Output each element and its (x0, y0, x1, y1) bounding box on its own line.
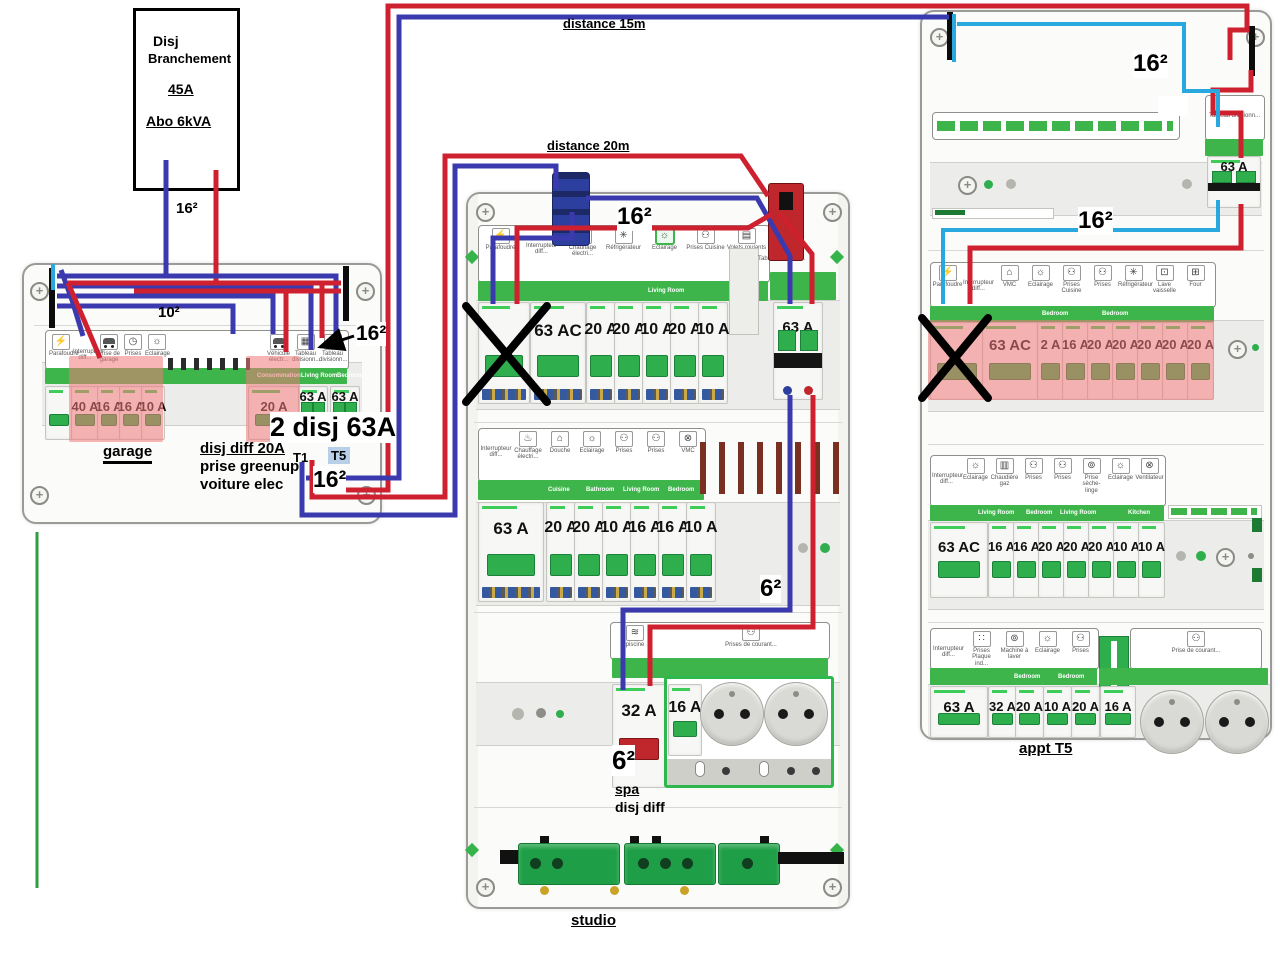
circuit-icon (996, 458, 1014, 474)
row2-icons: Interrupteur diff... Chauffage électri..… (479, 429, 705, 463)
circuit-icon (1072, 631, 1090, 647)
panel-screw (30, 282, 49, 301)
appt-title: appt T5 (1019, 740, 1072, 757)
circuit-icon (519, 431, 537, 447)
circuit-module: Interrupteur diff... (73, 334, 97, 362)
appt-row2-strip: Parafoudre Interrupteur diff... VMC Ecla… (930, 262, 1216, 308)
breaker-rating: 10 A (1113, 539, 1140, 554)
circuit-module: Prises Cuisine (685, 228, 726, 251)
breaker-toggle[interactable] (75, 414, 95, 426)
circuit-icon (738, 228, 756, 244)
wire-size-label: 10² (158, 304, 180, 321)
breaker[interactable]: 2 A (1037, 322, 1064, 400)
circuit-module: Prises Cuisine (1056, 265, 1087, 295)
panel-screw (823, 878, 842, 897)
breaker-toggle[interactable] (1047, 713, 1068, 725)
breaker-toggle[interactable] (145, 414, 162, 426)
main-diff-switch[interactable] (45, 386, 73, 440)
breaker-rating: 10 A (696, 321, 729, 339)
circuit-label: Prises (1064, 648, 1097, 654)
breaker[interactable]: 10 A (1043, 686, 1072, 738)
rail-screw (1216, 548, 1235, 567)
breaker-toggle[interactable] (1191, 363, 1210, 380)
circuit-module: Prises (1087, 265, 1118, 288)
breaker[interactable]: 16 A (630, 502, 660, 602)
breaker-toggle[interactable] (646, 355, 667, 377)
breaker-toggle[interactable] (1236, 171, 1256, 183)
breaker-toggle[interactable] (989, 363, 1030, 380)
breaker[interactable]: 20 A (1112, 322, 1139, 400)
spa-note: disj diff (615, 799, 665, 815)
circuit-icon (647, 431, 665, 447)
breaker[interactable]: 20 A (1063, 522, 1090, 598)
circuit-label: Eclairage (1025, 282, 1056, 288)
breaker-toggle[interactable] (1042, 561, 1061, 578)
surge-protector-crossed[interactable] (478, 302, 530, 404)
breaker-toggle[interactable] (606, 554, 627, 576)
breaker-toggle[interactable] (537, 355, 578, 377)
breaker[interactable]: 20 A (1071, 686, 1100, 738)
circuit-module: Interrupteur diff... (480, 431, 512, 459)
breaker-rating: 20 A (1187, 337, 1214, 352)
breaker-toggle[interactable] (662, 554, 683, 576)
service-box-rating: 45A (168, 81, 194, 97)
circuit-label: Prise sèche-linge (1077, 475, 1106, 494)
breaker-toggle[interactable] (49, 414, 69, 426)
power-socket[interactable] (700, 682, 764, 746)
phase-terminal (804, 386, 813, 395)
zone-label: Kitchen (1128, 510, 1150, 516)
row2-zone-band: Bedroom Bedroom (930, 306, 1214, 322)
diff-switch[interactable]: 63 AC (530, 302, 586, 404)
circuit-icon (1156, 265, 1174, 281)
zone-label: Living Room (301, 373, 337, 379)
zone-label: Living Room (648, 288, 684, 294)
busbar-cover (729, 248, 759, 335)
circuit-icon (656, 228, 674, 244)
circuit-module: Prise de garage (97, 334, 121, 364)
panel-screw (476, 878, 495, 897)
circuit-icon (939, 458, 955, 472)
breaker-toggle[interactable] (1075, 713, 1096, 725)
circuit-icon (1054, 458, 1072, 474)
wire-size-label: 16² (617, 203, 652, 231)
circuit-label: Four (1180, 282, 1211, 288)
sub-panel-label: Tableau divisionn... (1209, 113, 1261, 119)
circuit-icon (1187, 265, 1205, 281)
circuit-label: Interrupteur diff... (73, 349, 97, 362)
circuit-module: Chaudière gaz (990, 458, 1019, 488)
breaker[interactable]: 20 A (670, 302, 700, 404)
breaker-toggle[interactable] (1166, 363, 1185, 380)
studio-row2-strip: Interrupteur diff... Chauffage électri..… (478, 428, 706, 482)
breaker-rating: 20 A (1162, 337, 1189, 352)
wire-size-label: 16² (356, 322, 386, 346)
breaker-rating: 32 A (989, 699, 1016, 714)
wire-size-label: 6² (612, 745, 635, 776)
appt-row3-strip: Interrupteur diff... Eclairage Chaudière… (930, 455, 1166, 507)
breaker-toggle[interactable] (550, 554, 571, 576)
rail-screw (958, 176, 977, 195)
circuit-label: Eclairage (1106, 475, 1135, 481)
circuit-label: Interrupteur diff... (932, 646, 965, 659)
row3-icons: Interrupteur diff... Eclairage Chaudière… (931, 456, 1165, 496)
circuit-icon (1025, 458, 1043, 474)
row1-zone-band: Living Room (478, 281, 768, 301)
breaker-toggle[interactable] (702, 355, 723, 377)
wire-size-label: 16² (1078, 207, 1113, 235)
circuit-module: Prises (1019, 458, 1048, 481)
neutral-busbar (947, 12, 953, 60)
circuit-label: Chauffage électri... (512, 448, 544, 461)
breaker-toggle[interactable] (778, 330, 796, 351)
breaker[interactable]: 10 A (602, 502, 632, 602)
diff-switch[interactable]: 63 A (930, 686, 988, 738)
note-greenup: prise greenup (200, 458, 299, 475)
circuit-icon (297, 334, 315, 350)
circuit-icon (1032, 265, 1050, 281)
circuit-icon (615, 431, 633, 447)
breaker[interactable]: 20 A (546, 502, 576, 602)
breaker-rating: 63 A (493, 519, 528, 539)
breaker-toggle[interactable] (1116, 363, 1135, 380)
circuit-label: Tableau divisionn... (319, 351, 346, 364)
breaker-toggle[interactable] (992, 713, 1013, 725)
breaker[interactable]: 16 A (1013, 522, 1040, 598)
circuit-module: Parafoudre (932, 265, 963, 288)
breaker-toggle[interactable] (938, 561, 981, 578)
circuit-module: Four (1180, 265, 1211, 288)
phase-junction-block (768, 183, 804, 261)
earth-clamp (500, 850, 518, 864)
breaker[interactable]: 32 A (988, 686, 1017, 738)
circuit-label: Interrupteur diff... (932, 473, 961, 486)
zone-label: Bathroom (586, 487, 614, 493)
comb-busbar (168, 358, 250, 370)
breaker-rating: 10 A (684, 519, 717, 537)
service-box-title: Disj (153, 33, 179, 49)
panel-screw (30, 486, 49, 505)
circuit-label: Eclairage (644, 245, 685, 251)
circuit-icon (1141, 458, 1159, 474)
t1-label: T1 (293, 450, 308, 465)
sub-main-breaker[interactable]: 63 A (1207, 156, 1261, 208)
circuit-label: Ventilateur (1135, 475, 1164, 481)
zone-label: Living Room (1060, 510, 1096, 516)
breaker-toggle[interactable] (485, 355, 523, 377)
zone-label: Bedroom (337, 373, 363, 379)
zone-label: Bedroom (1026, 510, 1052, 516)
breaker[interactable]: 16 A (1062, 322, 1089, 400)
breaker-rating: 20 A (1088, 539, 1115, 554)
phase-busbar (343, 266, 349, 321)
circuit-icon (492, 228, 510, 244)
circuit-label: Prises (1048, 475, 1077, 481)
circuit-icon (1001, 265, 1019, 281)
circuit-module: Eclairage (145, 334, 169, 357)
circuit-icon (1125, 265, 1143, 281)
breaker-rating: 20 A (1087, 337, 1114, 352)
circuit-label: Prises (1019, 475, 1048, 481)
breaker[interactable]: 20 A (1015, 686, 1044, 738)
breaker-toggle[interactable] (690, 554, 711, 576)
diff-switch-crossed[interactable] (930, 322, 984, 400)
breaker-toggle[interactable] (1041, 363, 1060, 380)
circuit-label: Prise de courant... (1161, 648, 1231, 654)
note-2disj63a: 2 disj 63A (270, 412, 396, 443)
breaker[interactable]: 16 A (658, 502, 688, 602)
circuit-label: Véhicule électr... (265, 351, 292, 364)
circuit-module: Prise sèche-linge (1077, 458, 1106, 494)
breaker-rating: 16 A (988, 539, 1015, 554)
breaker-rating: 20 A (1072, 699, 1099, 714)
blank-strip (932, 112, 1180, 140)
breaker-toggle[interactable] (937, 363, 977, 380)
zone-label: Living Room (623, 487, 659, 493)
circuit-module: piscine (615, 625, 655, 648)
circuit-module: Prises (121, 334, 145, 357)
circuit-module: Machine à laver (998, 631, 1031, 661)
appt-row4-strip: Interrupteur diff... Prises Plaque ind..… (930, 628, 1099, 670)
circuit-label: VMC (994, 282, 1025, 288)
breaker-toggle[interactable] (800, 330, 818, 351)
circuit-label: Lave vaisselle (1149, 282, 1180, 295)
panel-screw (476, 203, 495, 222)
circuit-module: Prises (1048, 458, 1077, 481)
power-socket[interactable] (1140, 690, 1204, 754)
socket-icon (742, 625, 760, 641)
circuit-module: Réfrigérateur (1118, 265, 1149, 288)
neutral-terminal (783, 386, 792, 395)
breaker[interactable]: 20 A (1187, 322, 1214, 400)
breaker[interactable]: 16 A (988, 522, 1015, 598)
wire-size-label: 16² (1133, 50, 1168, 78)
power-socket[interactable] (764, 682, 828, 746)
circuit-module: Eclairage (1025, 265, 1056, 288)
circuit-module: Parafoudre (480, 228, 521, 251)
note-disj-diff: disj diff 20A (200, 440, 285, 457)
breaker-toggle[interactable] (1142, 561, 1161, 578)
circuit-module: Parafoudre (49, 334, 73, 357)
circuit-icon (100, 334, 118, 350)
wiring-diagram: Disj Branchement 45A Abo 6kVA 16² distan… (0, 0, 1280, 972)
breaker-toggle[interactable] (101, 414, 118, 426)
breaker-toggle[interactable] (1091, 363, 1110, 380)
breaker-rating: 16 A (1105, 699, 1132, 714)
circuit-module: Eclairage (576, 431, 608, 454)
spa-socket-breaker[interactable]: 16 A (668, 684, 702, 756)
breaker-toggle[interactable] (618, 355, 639, 377)
breaker[interactable]: 20 A (1088, 522, 1115, 598)
circuit-icon (939, 265, 957, 281)
breaker-rating: 20 A (1112, 337, 1139, 352)
circuit-module: Tableau divisionn... (292, 334, 319, 364)
circuit-label: Eclairage (1031, 648, 1064, 654)
breaker-toggle[interactable] (1212, 171, 1232, 183)
breaker[interactable]: 20 A (586, 302, 616, 404)
circuit-module: Ventilateur (1135, 458, 1164, 481)
circuit-module: Prises (1064, 631, 1097, 654)
breaker-toggle[interactable] (992, 561, 1011, 578)
socket-breaker[interactable]: 16 A (1100, 686, 1136, 738)
circuit-icon (697, 228, 715, 244)
wire-size-label: 16² (313, 466, 346, 493)
circuit-label: Eclairage (145, 351, 169, 357)
circuit-label: Prises (1087, 282, 1118, 288)
circuit-label: Machine à laver (998, 648, 1031, 661)
panel-screw (357, 486, 376, 505)
distance-20m-label: distance 20m (547, 138, 629, 153)
circuit-label: Douche (544, 448, 576, 454)
service-breaker-box: Disj Branchement 45A Abo 6kVA (133, 8, 240, 191)
wire-size-label: 16² (176, 200, 198, 217)
breaker-toggle[interactable] (1067, 561, 1086, 578)
circuit-label: Prise de garage (97, 351, 121, 364)
circuit-module: Interrupteur diff... (963, 265, 994, 293)
breaker-toggle[interactable] (1117, 561, 1136, 578)
garage-icons-right: Véhicule électr... Tableau divisionn... … (264, 332, 347, 366)
breaker-toggle[interactable] (1019, 713, 1040, 725)
diff-switch[interactable]: 63 AC (930, 522, 988, 598)
breaker-toggle[interactable] (634, 554, 655, 576)
breaker-toggle[interactable] (487, 554, 536, 576)
breaker-toggle[interactable] (673, 721, 697, 737)
circuit-module: Interrupteur diff... (932, 458, 961, 486)
row2-icons: Parafoudre Interrupteur diff... VMC Ecla… (931, 263, 1215, 297)
circuit-label: Prises Cuisine (1056, 282, 1087, 295)
wire-size-label: 6² (760, 575, 781, 603)
circuit-icon (583, 431, 601, 447)
breaker-rating: 10 A (1044, 699, 1071, 714)
breaker-toggle[interactable] (123, 414, 140, 426)
circuit-icon (973, 631, 991, 647)
circuit-icon (52, 334, 70, 350)
breaker[interactable]: 20 A (574, 502, 604, 602)
zone-label: Bedroom (1102, 311, 1128, 317)
studio-title: studio (571, 912, 616, 929)
circuit-label: Prises Plaque ind... (965, 648, 998, 667)
diff-switch[interactable]: 63 A (478, 502, 544, 602)
circuit-module: Eclairage (961, 458, 990, 481)
breaker[interactable]: 20 A (1087, 322, 1114, 400)
row3-zone-band (612, 658, 828, 678)
earth-link-wire (778, 852, 844, 864)
breaker[interactable]: 20 A (614, 302, 644, 404)
breaker[interactable]: 10 A (698, 302, 728, 404)
breaker-toggle[interactable] (1141, 363, 1160, 380)
breaker[interactable]: 10 A (1113, 522, 1140, 598)
circuit-icon (1063, 265, 1081, 281)
circuit-icon (534, 228, 550, 242)
breaker[interactable]: 20 A (1038, 522, 1065, 598)
breaker[interactable]: 20 A (1162, 322, 1189, 400)
circuit-module: Prises (640, 431, 672, 454)
breaker-rating: 63 AC (989, 337, 1031, 354)
circuit-label: Eclairage (961, 475, 990, 481)
breaker-toggle[interactable] (578, 554, 599, 576)
socket-strip: Prise de courant... (1130, 628, 1262, 670)
circuit-label: Interrupteur diff... (963, 280, 994, 293)
power-socket[interactable] (1205, 690, 1269, 754)
breaker-toggle[interactable] (674, 355, 695, 377)
circuit-label: piscine (615, 642, 655, 648)
t5-label: T5 (331, 448, 346, 463)
breaker-toggle[interactable] (1092, 561, 1111, 578)
breaker-rating: 32 A (621, 701, 656, 721)
socket-icon (1187, 631, 1205, 647)
diff-switch[interactable]: 63 AC (982, 322, 1038, 400)
circuit-icon (941, 631, 957, 645)
circuit-module: Eclairage (644, 228, 685, 251)
zone-label: Cuisine (548, 487, 570, 493)
breaker[interactable]: 20 A (1137, 322, 1164, 400)
circuit-label: Prises (608, 448, 640, 454)
circuit-module: Prises Plaque ind... (965, 631, 998, 667)
circuit-label: Interrupteur diff... (480, 446, 512, 459)
circuit-module: VMC (994, 265, 1025, 288)
breaker-toggle[interactable] (590, 355, 611, 377)
garage-icons-left: Parafoudre Interrupteur diff... Prise de… (48, 332, 170, 366)
zone-label: Bedroom (1058, 674, 1084, 680)
breaker[interactable]: 10 A (1138, 522, 1165, 598)
zone-label: Consommation (257, 373, 301, 379)
breaker[interactable]: 10 A (642, 302, 672, 404)
circuit-label: Prises Cuisine (685, 245, 726, 251)
pool-icon (626, 625, 644, 641)
service-box-title2: Branchement (148, 51, 231, 66)
breaker[interactable]: 10 A (141, 386, 165, 440)
service-box-subscription: Abo 6kVA (146, 113, 211, 129)
sub-panel-module: Tableau divisionn... (1205, 95, 1265, 141)
circuit-icon (324, 334, 342, 350)
breaker-rating: 63 AC (534, 321, 582, 341)
breaker-rating: 20 A (1137, 337, 1164, 352)
breaker-toggle[interactable] (1017, 561, 1036, 578)
zone-label: Bedroom (1042, 311, 1068, 317)
sub-main-breaker[interactable]: 63 A (773, 302, 823, 400)
breaker-toggle[interactable] (1105, 713, 1131, 725)
circuit-label: Prises (121, 351, 145, 357)
studio-row3-strip: piscine Prises de courant... (610, 622, 830, 660)
circuit-module: Véhicule électr... (265, 334, 292, 364)
breaker-rating: 20 A (1038, 539, 1065, 554)
spa-label: spa (615, 781, 639, 797)
circuit-module: Douche (544, 431, 576, 454)
garage-title: garage (103, 443, 152, 464)
circuit-label: Chaudière gaz (990, 475, 1019, 488)
breaker[interactable]: 10 A (686, 502, 716, 602)
rail-screw (1228, 340, 1247, 359)
circuit-icon (971, 265, 987, 279)
circuit-icon (148, 334, 166, 350)
circuit-icon (1039, 631, 1057, 647)
breaker-toggle[interactable] (1066, 363, 1085, 380)
phase-busbar (1249, 26, 1255, 76)
circuit-module: Chauffage électri... (512, 431, 544, 461)
breaker-rating: 10 A (1138, 539, 1165, 554)
circuit-label: Chauffage électri... (562, 245, 603, 258)
row2-zone-band: Cuisine Bathroom Living Room Bedroom (478, 480, 704, 500)
circuit-icon (967, 458, 985, 474)
circuit-icon (1006, 631, 1024, 647)
circuit-module: Eclairage (1031, 631, 1064, 654)
panel-screw (823, 203, 842, 222)
circuit-label: Parafoudre (49, 351, 73, 357)
circuit-icon (77, 334, 93, 348)
circuit-label: Eclairage (576, 448, 608, 454)
breaker-toggle[interactable] (938, 713, 981, 725)
circuit-module: Prises (608, 431, 640, 454)
